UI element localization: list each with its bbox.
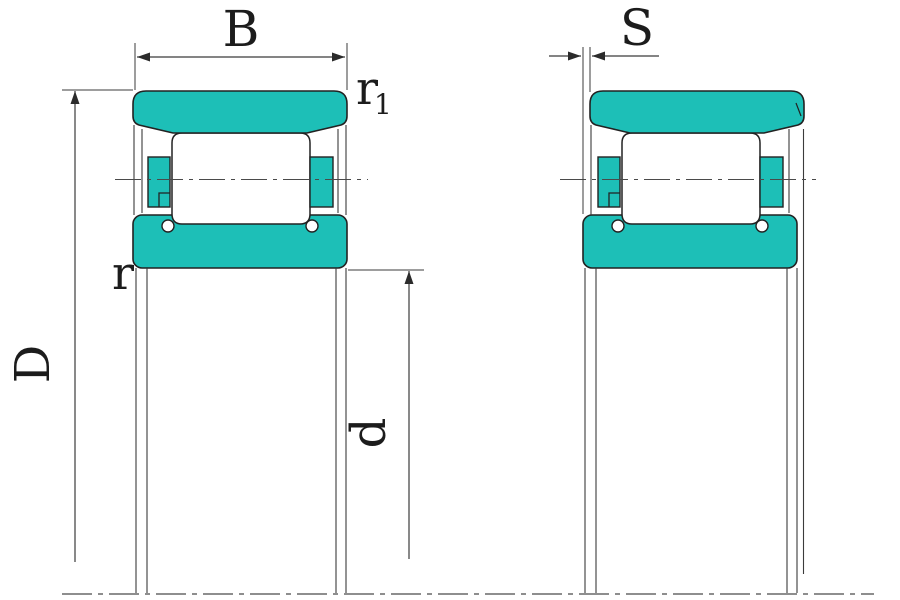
dim-label-S: S bbox=[620, 0, 654, 57]
dim-label-d: d bbox=[341, 418, 397, 449]
right-cage-segment-right bbox=[760, 157, 783, 207]
right-relief-circle-right bbox=[756, 220, 768, 232]
dimension-B: B bbox=[135, 0, 347, 90]
left-roller bbox=[172, 133, 310, 224]
dim-label-B: B bbox=[223, 0, 260, 58]
dimension-D: D bbox=[5, 90, 133, 562]
drawing-canvas: B r 1 r D d bbox=[0, 0, 900, 600]
dim-label-D: D bbox=[5, 345, 61, 383]
right-roller bbox=[622, 133, 760, 224]
right-relief-circle-left bbox=[612, 220, 624, 232]
bearing-technical-drawing: B r 1 r D d bbox=[0, 0, 900, 600]
dim-label-r: r bbox=[112, 246, 134, 300]
right-outer-ring bbox=[590, 91, 804, 133]
left-cage-segment-right bbox=[310, 157, 333, 207]
dim-label-r1: r 1 bbox=[356, 61, 392, 121]
dimension-d: d bbox=[341, 270, 424, 559]
left-bearing-view: B r 1 r D d bbox=[5, 0, 424, 593]
left-outer-ring bbox=[133, 91, 347, 133]
right-bearing-view: S bbox=[549, 0, 816, 593]
left-relief-circle-left bbox=[162, 220, 174, 232]
left-relief-circle-right bbox=[306, 220, 318, 232]
